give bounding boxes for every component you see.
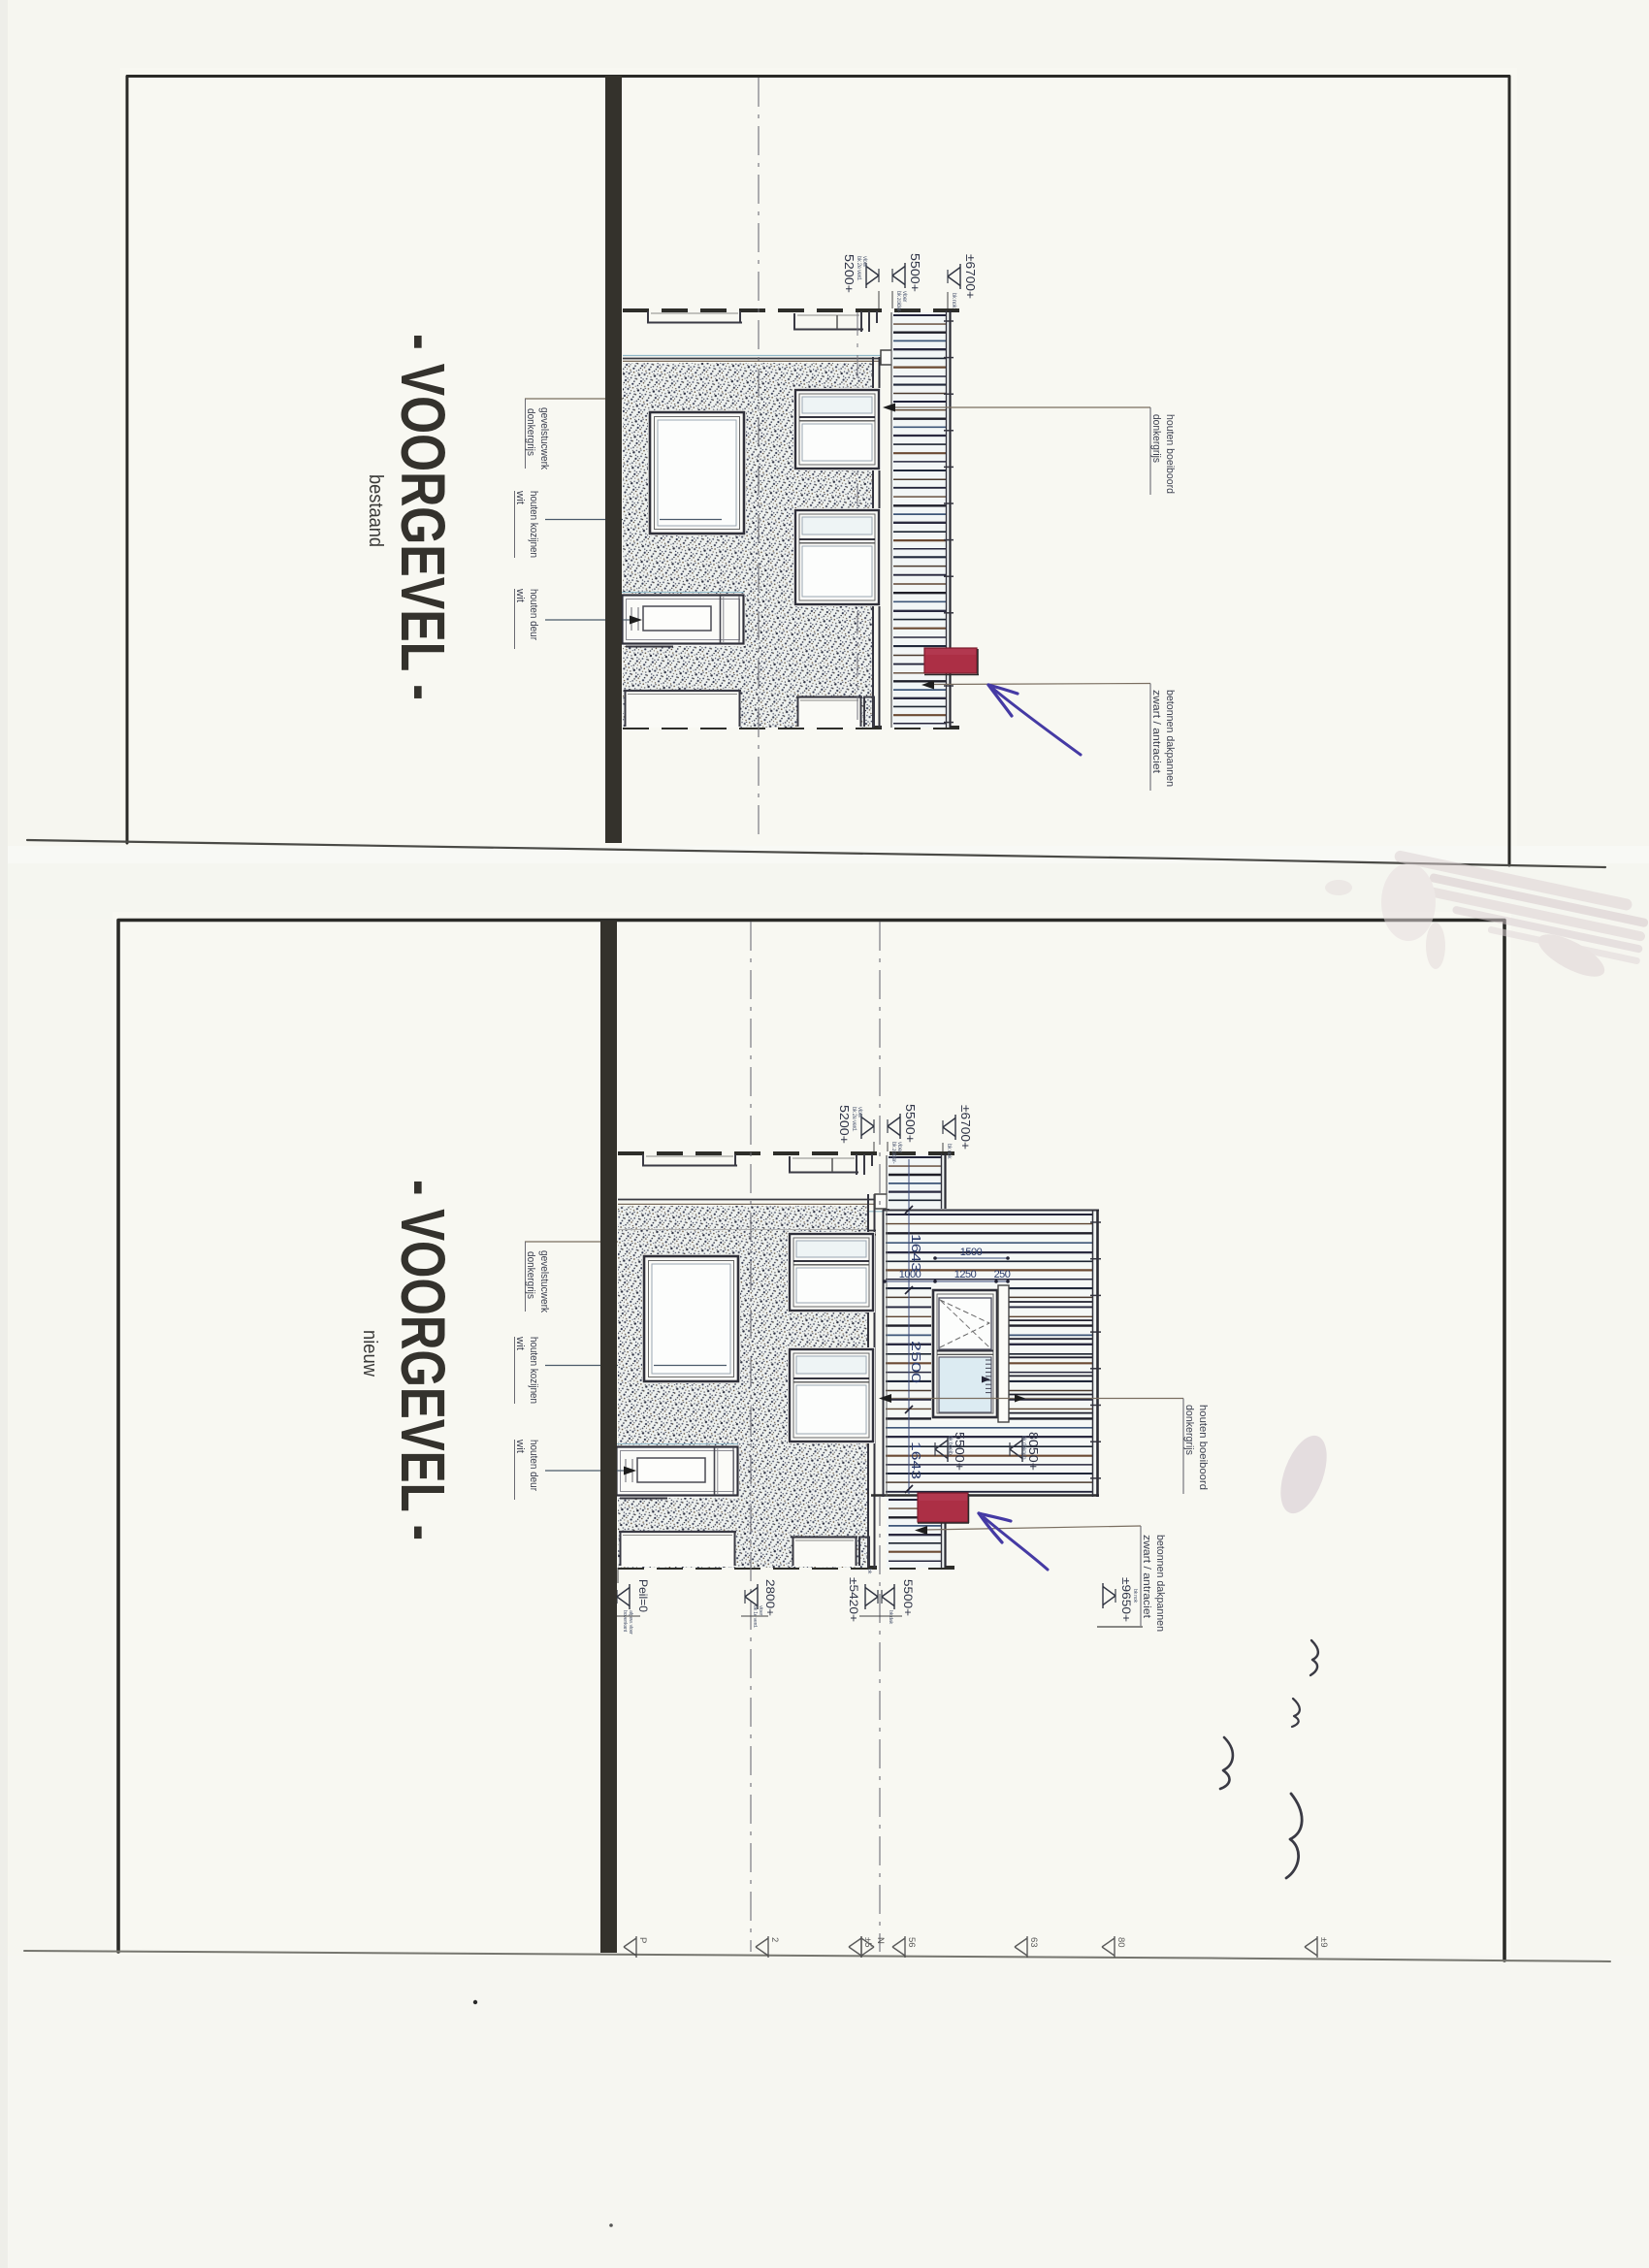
svg-text:5500+: 5500+ <box>901 1579 915 1616</box>
svg-text:betonnen dakpannen: betonnen dakpannen <box>1154 1535 1166 1632</box>
svg-text:gevelstucwerk: gevelstucwerk <box>538 1250 550 1312</box>
svg-text:1000: 1000 <box>899 1269 921 1280</box>
svg-text:2500: 2500 <box>909 1341 923 1383</box>
svg-text:wit: wit <box>514 490 526 504</box>
svg-text:bk 1e verd.: bk 1e verd. <box>752 1605 758 1629</box>
svg-text:bk: bk <box>866 1569 872 1574</box>
svg-text:N: N <box>875 1937 886 1944</box>
svg-text:houten deur: houten deur <box>528 589 539 640</box>
svg-text:wit: wit <box>514 1439 526 1453</box>
svg-text:56: 56 <box>906 1937 917 1948</box>
svg-text:bk zolder-: bk zolder- <box>895 291 901 313</box>
svg-text:vloer: vloer <box>896 1142 902 1152</box>
svg-text:80: 80 <box>1115 1937 1126 1948</box>
svg-text:bk 2e verd.: bk 2e verd. <box>856 256 861 281</box>
svg-text:donkergrijs: donkergrijs <box>525 1251 536 1299</box>
svg-text:1643: 1643 <box>909 1234 923 1272</box>
svg-text:5500+: 5500+ <box>908 253 921 292</box>
svg-text:5500+: 5500+ <box>903 1104 917 1143</box>
svg-text:2800+: 2800+ <box>763 1579 777 1616</box>
svg-text:1643: 1643 <box>909 1442 923 1479</box>
svg-text:1500: 1500 <box>960 1247 983 1258</box>
svg-text:bk 2e verd.: bk 2e verd. <box>851 1107 857 1132</box>
svg-text:vloer: vloer <box>861 256 867 267</box>
svg-text:5500+: 5500+ <box>953 1432 966 1471</box>
svg-text:afgew. vloer: afgew. vloer <box>628 1610 633 1635</box>
svg-text:vloer: vloer <box>857 1107 862 1118</box>
svg-text:houten deur: houten deur <box>528 1440 539 1491</box>
svg-text:5200+: 5200+ <box>842 254 856 293</box>
svg-text:- VOORGEVEL -: - VOORGEVEL - <box>388 334 458 700</box>
svg-text:donkergrijs: donkergrijs <box>1150 414 1162 463</box>
svg-text:houten kozijnen: houten kozijnen <box>528 1337 539 1404</box>
svg-text:bk nok: bk nok <box>951 293 956 309</box>
svg-text:bk dak: bk dak <box>888 1610 893 1624</box>
svg-text:bovenkant: bovenkant <box>622 1610 628 1633</box>
svg-text:vloer: vloer <box>758 1605 763 1615</box>
svg-text:±9: ±9 <box>1318 1937 1329 1948</box>
svg-text:donkergrijs: donkergrijs <box>1183 1405 1195 1455</box>
svg-text:vloer: vloer <box>901 291 907 302</box>
svg-text:nieuw: nieuw <box>359 1330 380 1377</box>
svg-text:63: 63 <box>1028 1937 1039 1948</box>
svg-text:±9650+: ±9650+ <box>1119 1577 1133 1622</box>
svg-text:bk boeib.: bk boeib. <box>947 1436 953 1456</box>
svg-text:1250: 1250 <box>954 1269 977 1280</box>
svg-text:P: P <box>637 1937 648 1943</box>
svg-text:8050+: 8050+ <box>1026 1432 1040 1471</box>
svg-text:houten boeiboord: houten boeiboord <box>1164 414 1176 494</box>
svg-text:bestaand: bestaand <box>365 474 386 547</box>
svg-text:5200+: 5200+ <box>837 1105 851 1144</box>
svg-text:2: 2 <box>769 1937 780 1942</box>
svg-text:- VOORGEVEL -: - VOORGEVEL - <box>388 1180 458 1540</box>
svg-text:±6700+: ±6700+ <box>958 1105 972 1150</box>
svg-text:gevelstucwerk: gevelstucwerk <box>538 407 550 470</box>
svg-text:zwart / antraciet: zwart / antraciet <box>1141 1535 1152 1618</box>
svg-text:bk dakopb.: bk dakopb. <box>1020 1436 1026 1461</box>
svg-text:Peil=0: Peil=0 <box>636 1579 650 1612</box>
svg-text:zwart / antraciet: zwart / antraciet <box>1150 690 1162 773</box>
svg-text:bk zolder-: bk zolder- <box>890 1142 896 1164</box>
svg-text:wit: wit <box>514 1336 526 1350</box>
svg-text:houten boeiboord: houten boeiboord <box>1197 1405 1209 1490</box>
svg-text:donkergrijs: donkergrijs <box>525 408 536 456</box>
svg-text:bk nok: bk nok <box>946 1144 952 1160</box>
svg-text:wit: wit <box>514 588 526 602</box>
svg-text:houten kozijnen: houten kozijnen <box>528 491 539 558</box>
svg-text:betonnen dakpannen: betonnen dakpannen <box>1164 690 1176 787</box>
svg-text:250: 250 <box>994 1269 1011 1280</box>
svg-text:±6700+: ±6700+ <box>963 254 977 299</box>
svg-text:±5420+: ±5420+ <box>847 1577 860 1622</box>
svg-text:bk nok: bk nok <box>1132 1589 1138 1603</box>
